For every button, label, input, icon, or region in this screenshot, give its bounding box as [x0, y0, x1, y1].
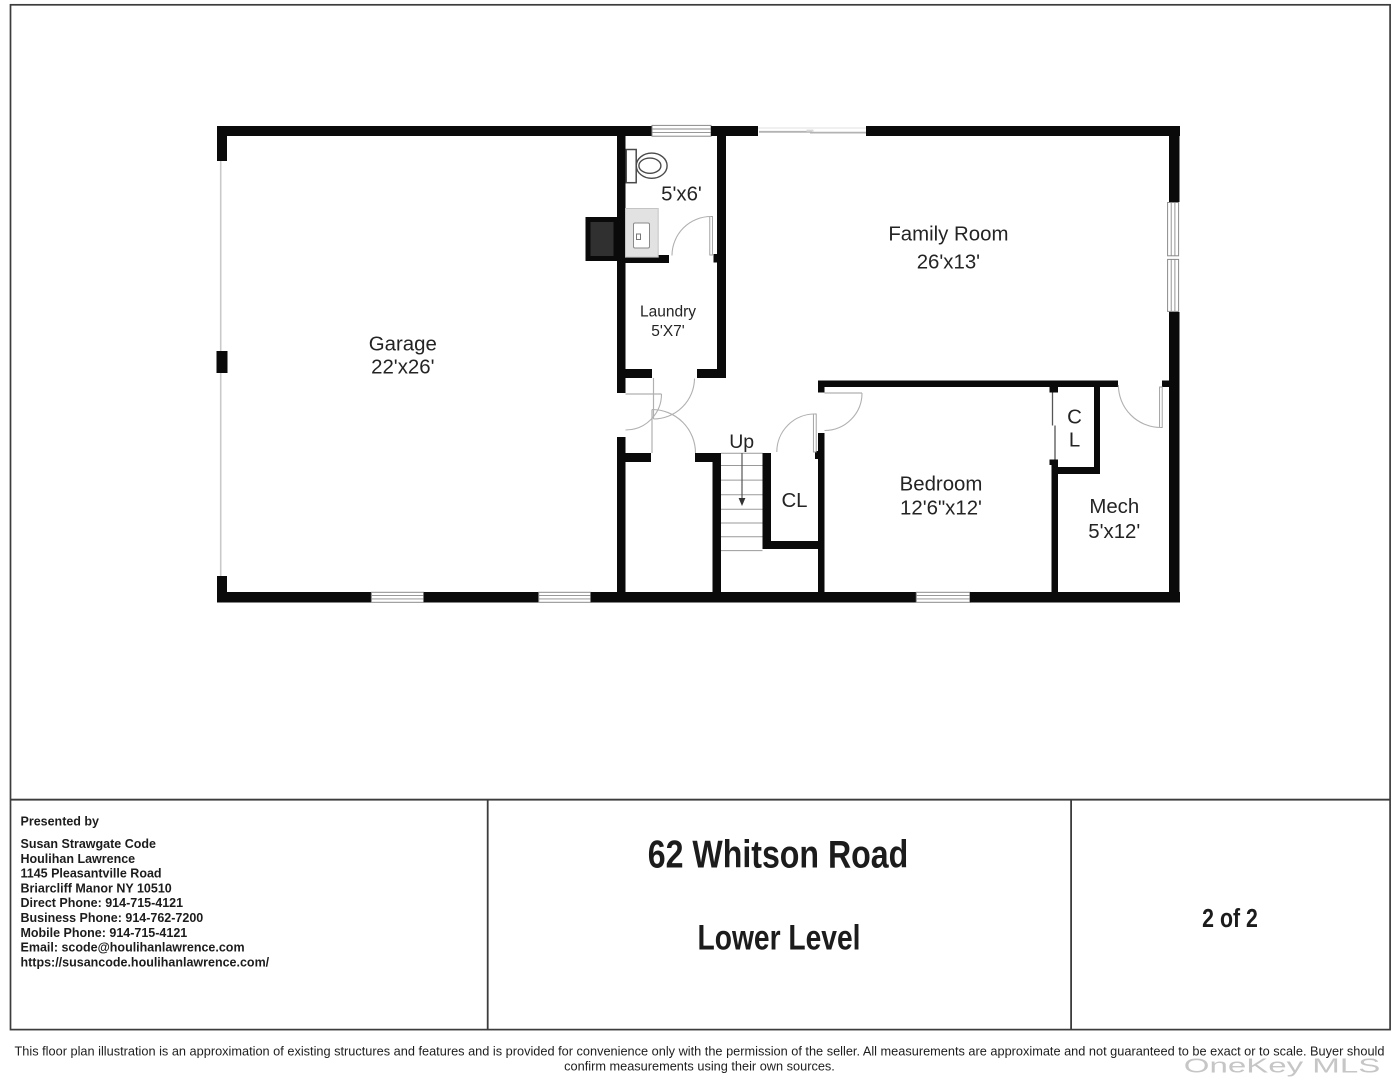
svg-text:This floor plan illustration i: This floor plan illustration is an appro…: [15, 1044, 1385, 1059]
svg-text:22'x26': 22'x26': [371, 357, 434, 379]
svg-text:Direct Phone: 914-715-4121: Direct Phone: 914-715-4121: [21, 896, 184, 910]
svg-text:5'x6': 5'x6': [661, 184, 702, 206]
svg-text:Houlihan Lawrence: Houlihan Lawrence: [21, 852, 136, 866]
svg-text:Mech: Mech: [1089, 496, 1139, 518]
svg-text:1145 Pleasantville Road: 1145 Pleasantville Road: [21, 867, 162, 881]
svg-text:26'x13': 26'x13': [917, 252, 980, 274]
svg-text:Garage: Garage: [369, 334, 437, 356]
svg-text:Lower Level: Lower Level: [697, 917, 860, 957]
svg-text:2 of 2: 2 of 2: [1202, 904, 1258, 934]
svg-text:Up: Up: [729, 431, 754, 453]
svg-text:5'x12': 5'x12': [1088, 521, 1140, 543]
svg-text:Bedroom: Bedroom: [900, 474, 983, 496]
svg-text:12'6"x12': 12'6"x12': [900, 498, 982, 520]
svg-text:Family Room: Family Room: [888, 224, 1008, 246]
svg-text:5'X7': 5'X7': [651, 323, 685, 340]
svg-text:Business Phone: 914-762-7200: Business Phone: 914-762-7200: [21, 911, 204, 925]
svg-text:L: L: [1069, 430, 1080, 452]
svg-text:confirm measurements using the: confirm measurements using their own sou…: [564, 1059, 835, 1074]
svg-text:Laundry: Laundry: [640, 304, 696, 321]
svg-text:Susan Strawgate Code: Susan Strawgate Code: [21, 837, 156, 851]
svg-text:C: C: [1067, 407, 1082, 429]
svg-text:Mobile Phone: 914-715-4121: Mobile Phone: 914-715-4121: [21, 926, 188, 940]
svg-text:Email: scode@houlihanlawrence.: Email: scode@houlihanlawrence.com: [21, 941, 245, 955]
svg-text:Briarcliff Manor NY 10510: Briarcliff Manor NY 10510: [21, 881, 172, 895]
svg-text:https://susancode.houlihanlawr: https://susancode.houlihanlawrence.com/: [21, 955, 270, 969]
svg-text:62 Whitson Road: 62 Whitson Road: [648, 833, 909, 877]
svg-text:Presented by: Presented by: [21, 815, 100, 829]
svg-text:CL: CL: [781, 490, 807, 512]
